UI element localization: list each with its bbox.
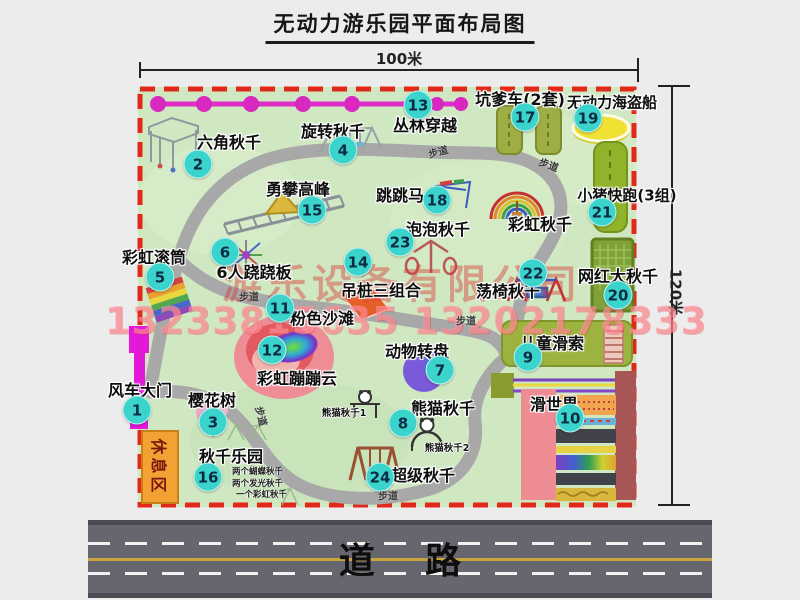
road-label: 道 路: [339, 532, 461, 584]
rest-area-label: 休息区: [148, 438, 172, 495]
pig-run-icon: [594, 142, 627, 232]
road: 道 路: [88, 520, 712, 598]
page-title: 无动力游乐园平面布局图: [266, 8, 535, 44]
pirate-ship-icon: [573, 115, 629, 144]
watermark-phone: 13233815635 13202178333: [105, 300, 707, 343]
dimension-top-label: 100米: [376, 48, 422, 69]
animal-carousel-icon: [403, 350, 445, 392]
park-map-poster: { "title": "无动力游乐园平面布局图", "dimension_top…: [0, 0, 800, 600]
